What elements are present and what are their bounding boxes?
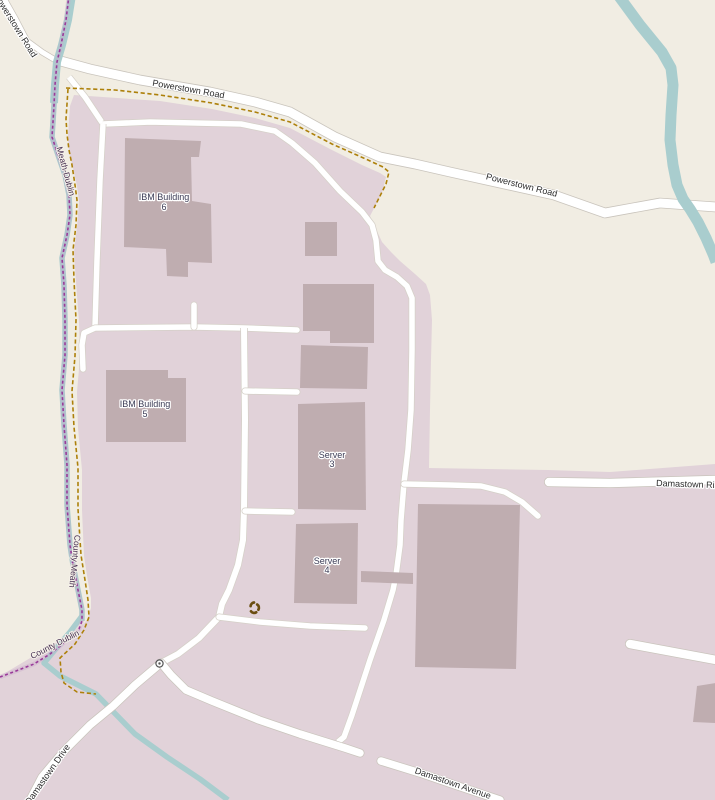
svg-text:6: 6 — [161, 202, 166, 212]
svg-text:5: 5 — [142, 409, 147, 419]
svg-text:IBM Building: IBM Building — [120, 399, 171, 409]
svg-text:3: 3 — [329, 459, 334, 469]
svg-text:IBM Building: IBM Building — [139, 192, 190, 202]
svg-text:4: 4 — [324, 565, 329, 575]
